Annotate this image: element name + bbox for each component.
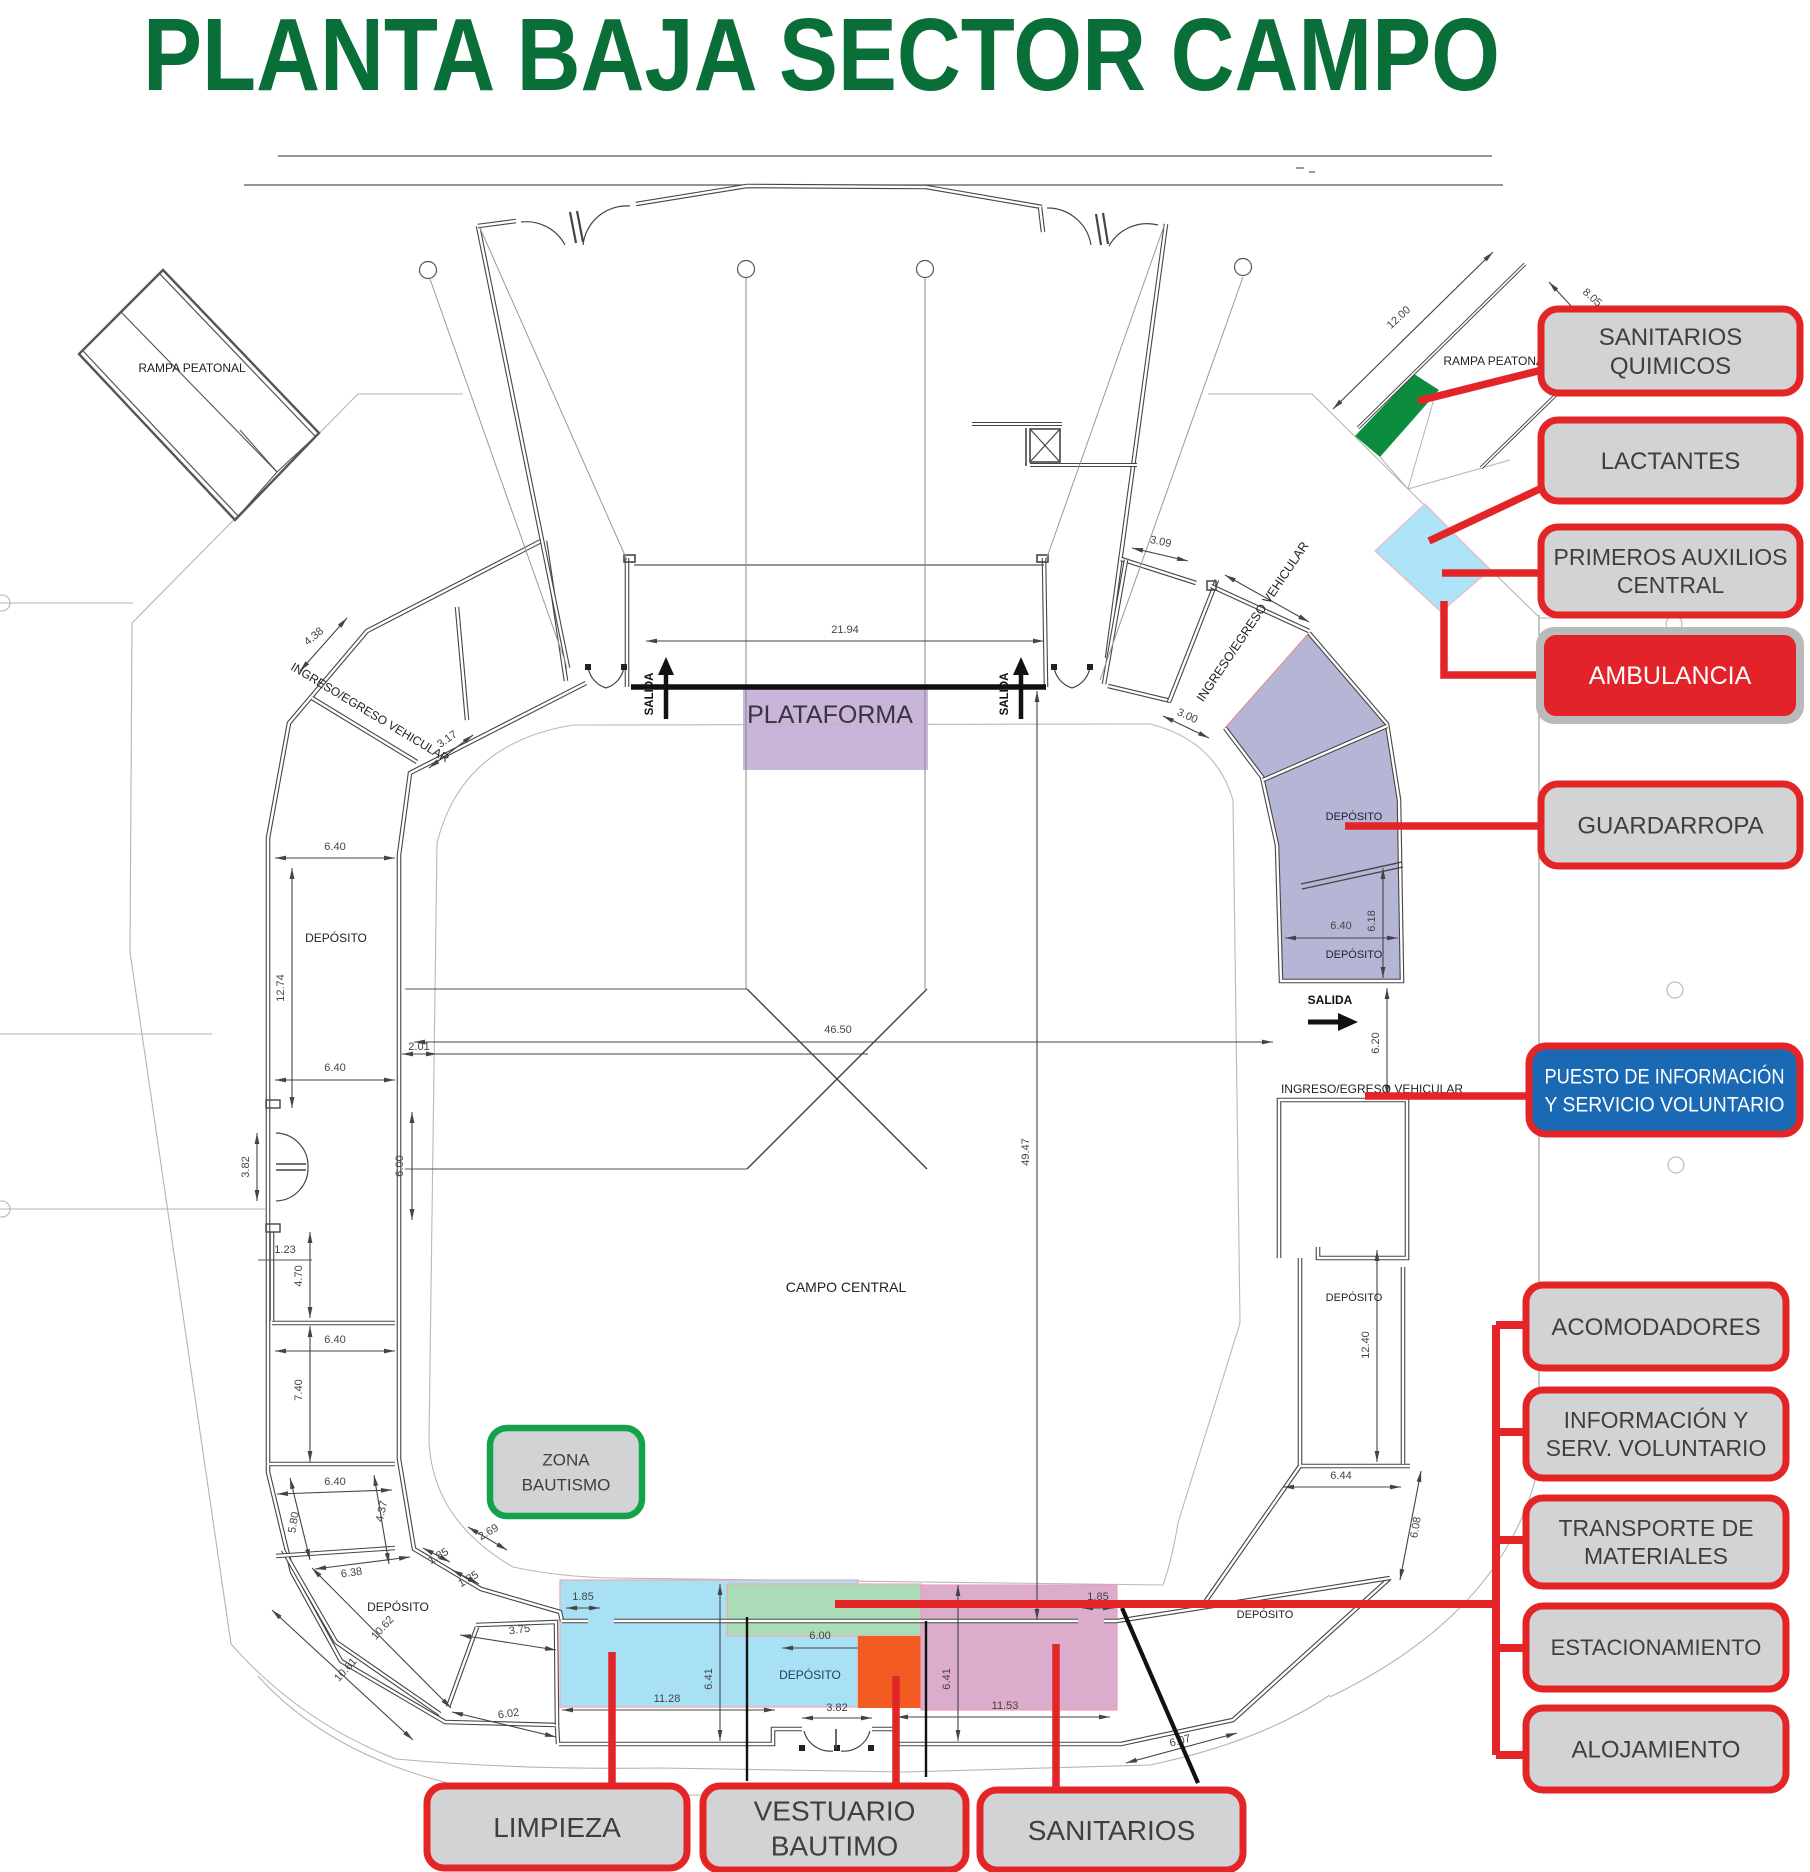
svg-text:CAMPO CENTRAL: CAMPO CENTRAL: [786, 1279, 907, 1295]
svg-text:1.23: 1.23: [274, 1244, 295, 1256]
svg-text:DEPÓSITO: DEPÓSITO: [1237, 1608, 1294, 1621]
svg-text:11.28: 11.28: [654, 1693, 681, 1705]
svg-text:ZONA: ZONA: [542, 1450, 590, 1469]
svg-text:11.53: 11.53: [992, 1700, 1019, 1712]
svg-text:CENTRAL: CENTRAL: [1617, 572, 1725, 598]
svg-text:MATERIALES: MATERIALES: [1584, 1543, 1728, 1569]
svg-text:SALIDA: SALIDA: [1308, 993, 1353, 1007]
svg-text:ALOJAMIENTO: ALOJAMIENTO: [1572, 1736, 1741, 1763]
svg-text:ACOMODADORES: ACOMODADORES: [1551, 1314, 1760, 1341]
svg-text:6.40: 6.40: [324, 1476, 345, 1488]
svg-text:PLATAFORMA: PLATAFORMA: [747, 701, 913, 729]
svg-text:RAMPA PEATONAL: RAMPA PEATONAL: [1443, 354, 1551, 368]
svg-text:RAMPA PEATONAL: RAMPA PEATONAL: [138, 361, 246, 375]
svg-text:6.00: 6.00: [394, 1155, 406, 1176]
svg-text:DEPÓSITO: DEPÓSITO: [1326, 810, 1383, 823]
svg-text:12.40: 12.40: [1360, 1331, 1372, 1359]
svg-text:3.82: 3.82: [826, 1702, 847, 1714]
svg-text:DEPÓSITO: DEPÓSITO: [305, 930, 367, 945]
svg-text:VESTUARIO: VESTUARIO: [754, 1795, 916, 1826]
svg-text:6.40: 6.40: [324, 841, 345, 853]
svg-text:PUESTO DE INFORMACIÓN: PUESTO DE INFORMACIÓN: [1545, 1065, 1785, 1088]
svg-text:SANITARIOS: SANITARIOS: [1599, 324, 1743, 351]
svg-text:DEPÓSITO: DEPÓSITO: [1326, 948, 1383, 961]
svg-text:21.94: 21.94: [831, 624, 859, 636]
svg-text:DEPÓSITO: DEPÓSITO: [779, 1667, 841, 1682]
svg-text:6.18: 6.18: [1366, 910, 1378, 931]
svg-text:BAUTISMO: BAUTISMO: [522, 1475, 611, 1494]
svg-text:PLANTA BAJA SECTOR CAMPO: PLANTA BAJA SECTOR CAMPO: [143, 0, 1500, 112]
svg-text:LIMPIEZA: LIMPIEZA: [493, 1812, 621, 1843]
svg-text:6.00: 6.00: [809, 1630, 830, 1642]
svg-text:12.74: 12.74: [275, 974, 287, 1002]
svg-text:46.50: 46.50: [824, 1024, 852, 1036]
svg-text:PRIMEROS AUXILIOS: PRIMEROS AUXILIOS: [1554, 544, 1788, 570]
svg-text:4.70: 4.70: [293, 1265, 305, 1286]
svg-text:1.85: 1.85: [572, 1591, 593, 1603]
svg-text:SERV. VOLUNTARIO: SERV. VOLUNTARIO: [1546, 1435, 1767, 1461]
svg-text:LACTANTES: LACTANTES: [1601, 448, 1741, 475]
svg-text:49.47: 49.47: [1020, 1138, 1032, 1166]
svg-text:6.41: 6.41: [703, 1668, 715, 1689]
svg-text:ESTACIONAMIENTO: ESTACIONAMIENTO: [1551, 1635, 1762, 1660]
svg-text:6.40: 6.40: [324, 1062, 345, 1074]
svg-text:DEPÓSITO: DEPÓSITO: [1326, 1291, 1383, 1304]
svg-text:6.20: 6.20: [1370, 1032, 1382, 1053]
svg-text:6.40: 6.40: [324, 1334, 345, 1346]
svg-text:INFORMACIÓN Y: INFORMACIÓN Y: [1564, 1407, 1749, 1433]
svg-text:QUIMICOS: QUIMICOS: [1610, 353, 1731, 380]
svg-text:3.82: 3.82: [240, 1156, 252, 1177]
svg-text:AMBULANCIA: AMBULANCIA: [1589, 662, 1752, 690]
svg-text:BAUTIMO: BAUTIMO: [771, 1830, 899, 1861]
svg-text:6.41: 6.41: [941, 1668, 953, 1689]
svg-text:TRANSPORTE DE: TRANSPORTE DE: [1558, 1515, 1753, 1541]
svg-text:7.40: 7.40: [293, 1379, 305, 1400]
svg-text:SALIDA: SALIDA: [644, 673, 656, 716]
svg-text:2.01: 2.01: [408, 1041, 429, 1053]
svg-text:GUARDARROPA: GUARDARROPA: [1577, 812, 1763, 839]
svg-text:Y SERVICIO VOLUNTARIO: Y SERVICIO VOLUNTARIO: [1545, 1093, 1785, 1116]
svg-text:SALIDA: SALIDA: [999, 673, 1011, 716]
svg-text:SANITARIOS: SANITARIOS: [1028, 1815, 1196, 1846]
svg-text:DEPÓSITO: DEPÓSITO: [367, 1599, 429, 1614]
svg-text:6.40: 6.40: [1330, 920, 1351, 932]
svg-text:6.44: 6.44: [1330, 1470, 1351, 1482]
